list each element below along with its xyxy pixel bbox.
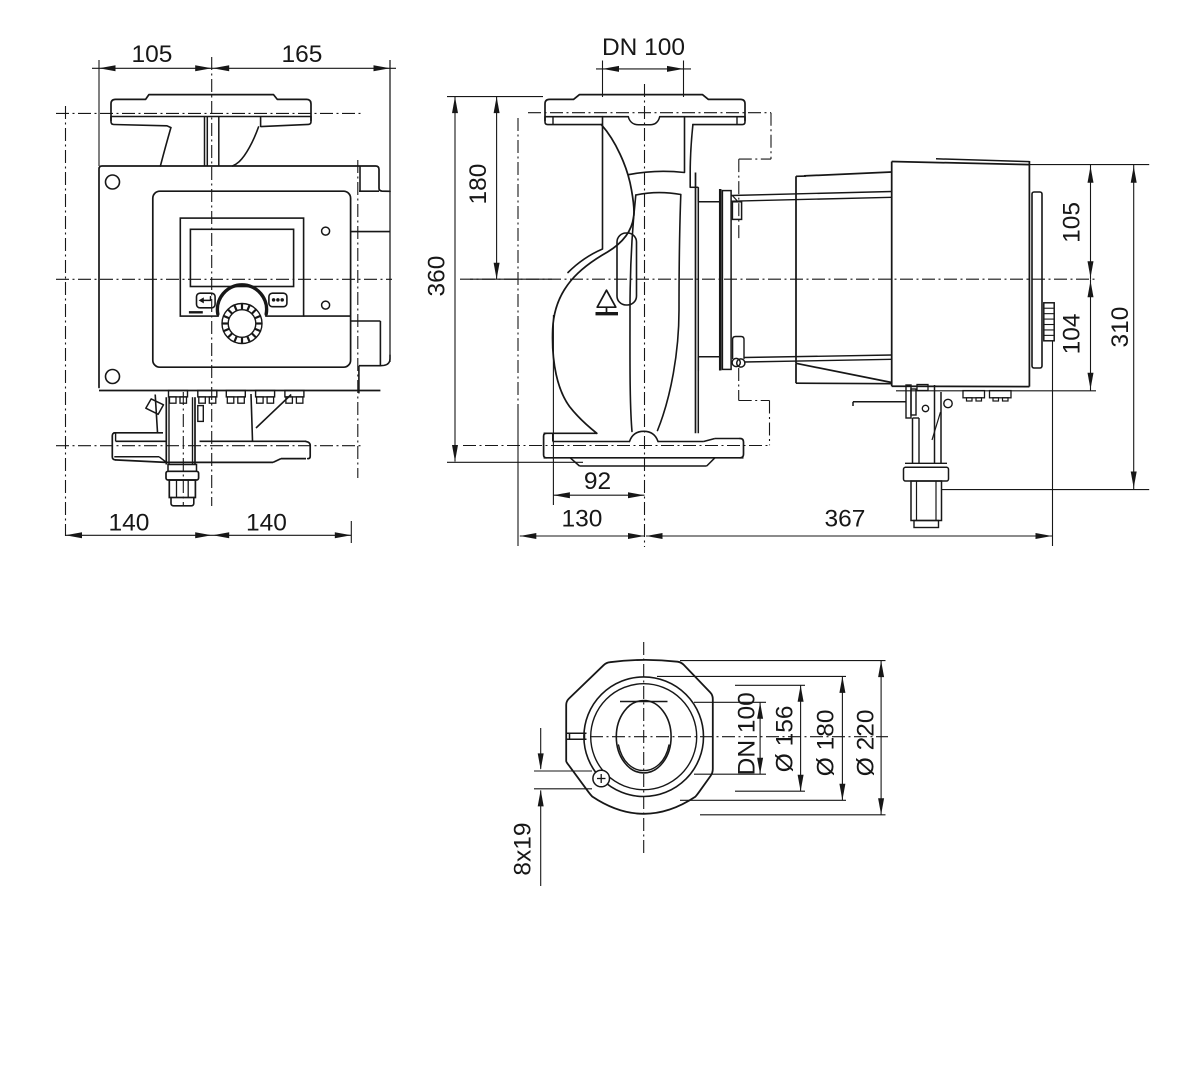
svg-text:DN 100: DN 100 [602, 34, 685, 61]
svg-text:310: 310 [1107, 307, 1134, 348]
svg-text:105: 105 [132, 41, 173, 68]
svg-text:Ø 156: Ø 156 [772, 706, 799, 773]
svg-text:140: 140 [109, 510, 150, 537]
svg-text:92: 92 [584, 468, 611, 495]
svg-text:360: 360 [424, 256, 451, 297]
svg-text:130: 130 [562, 506, 603, 533]
svg-text:367: 367 [825, 506, 866, 533]
svg-text:8x19: 8x19 [510, 822, 537, 875]
svg-text:180: 180 [465, 164, 492, 205]
svg-text:105: 105 [1059, 202, 1086, 243]
svg-text:Ø 220: Ø 220 [853, 710, 880, 777]
svg-text:165: 165 [282, 41, 323, 68]
svg-text:140: 140 [246, 510, 287, 537]
svg-text:DN 100: DN 100 [734, 692, 761, 775]
svg-text:104: 104 [1059, 313, 1086, 354]
svg-text:Ø 180: Ø 180 [813, 710, 840, 777]
